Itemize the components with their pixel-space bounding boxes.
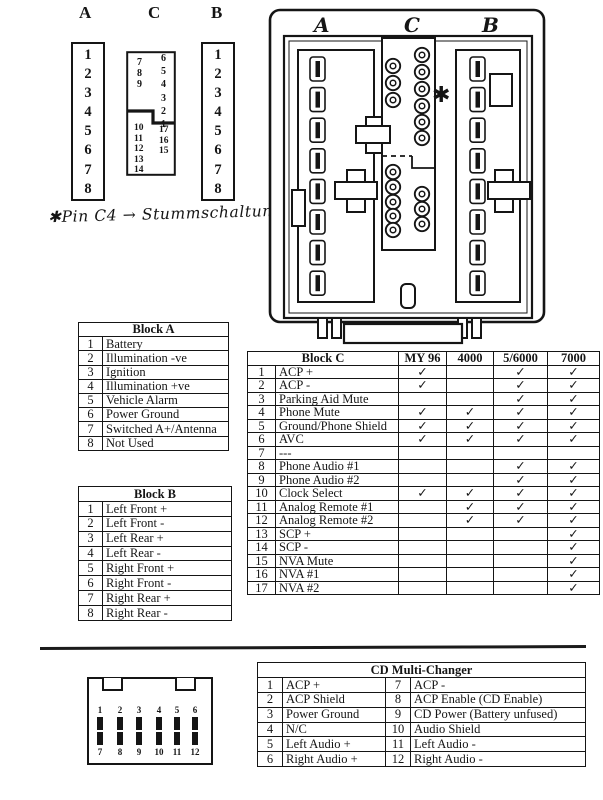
check-cell [494, 554, 548, 568]
pin-number: 12 [134, 144, 144, 155]
column-header: MY 96 [399, 352, 447, 366]
check-cell [399, 527, 447, 541]
round-pin-center [419, 69, 425, 75]
connector-c-pinout: 789 654321 1011121314 171615 [126, 51, 176, 176]
pin-name-cell: Left Rear + [103, 531, 232, 546]
check-cell [447, 379, 494, 393]
blade-pin [316, 153, 321, 169]
pin-number-cell: 5 [248, 419, 276, 433]
pin-number-cell: 2 [248, 379, 276, 393]
round-pin-center [419, 52, 425, 58]
pin-number-cell: 6 [258, 752, 283, 767]
table-row: 15NVA Mute✓ [248, 554, 600, 568]
pin-number: 3 [73, 84, 103, 103]
pin-name-cell: AVC [276, 433, 399, 447]
pin-number: 3 [131, 705, 147, 716]
pin-number-cell: 4 [79, 546, 103, 561]
blade-pin [316, 92, 321, 108]
pin-name-cell: Analog Remote #2 [276, 514, 399, 528]
pin-number-cell: 7 [79, 422, 103, 436]
connector-c-round-pins-bottom-left [386, 165, 400, 237]
check-cell: ✓ [494, 460, 548, 474]
table-header-row: Block CMY 9640005/60007000 [248, 352, 600, 366]
pin-number-cell: 12 [248, 514, 276, 528]
pin-name-cell: Right Front + [103, 561, 232, 576]
check-cell [447, 460, 494, 474]
pin-number-cell: 17 [248, 581, 276, 595]
pin-name-cell: NVA #2 [276, 581, 399, 595]
check-cell: ✓ [548, 487, 600, 501]
pin-number: 2 [203, 65, 233, 84]
check-cell [447, 527, 494, 541]
round-pin-center [419, 86, 425, 92]
pin-name-cell: --- [276, 446, 399, 460]
diagram-label-b: B [481, 13, 499, 37]
table-row: 3Ignition [79, 365, 229, 379]
pin-number-cell: 6 [248, 433, 276, 447]
table-row: 17NVA #2✓ [248, 581, 600, 595]
pin-number: 4 [161, 78, 166, 91]
pin-number: 14 [134, 165, 144, 176]
table-title: Block A [79, 323, 229, 337]
connector-c-pins-top-left: 789 [137, 57, 142, 90]
handwritten-note: ✱Pin C4 → Stummschaltung [48, 202, 284, 227]
table-row: 14SCP -✓ [248, 541, 600, 555]
pin-number-cell: 2 [79, 516, 103, 531]
pin-name-cell: Left Front - [103, 516, 232, 531]
pin-name-cell: ACP - [276, 379, 399, 393]
blade-pin [476, 61, 481, 77]
pin-number: 9 [131, 747, 147, 758]
pin-number: 1 [203, 46, 233, 65]
pin-number-cell: 8 [79, 436, 103, 450]
pin-number: 12 [187, 747, 203, 758]
table-row: 4Illumination +ve [79, 379, 229, 393]
connector-a-letter: A [79, 3, 91, 23]
table-row: 12Analog Remote #2✓✓✓ [248, 514, 600, 528]
pin-number: 8 [73, 180, 103, 199]
check-cell: ✓ [447, 433, 494, 447]
pin-number: 13 [134, 155, 144, 166]
pin-number: 15 [159, 146, 169, 157]
table-row: 2Left Front - [79, 516, 232, 531]
check-cell [494, 581, 548, 595]
pin-name-cell: NVA Mute [276, 554, 399, 568]
table-row: 5Right Front + [79, 561, 232, 576]
pin-number: 2 [161, 105, 166, 118]
check-cell [399, 581, 447, 595]
check-cell: ✓ [548, 460, 600, 474]
pin-name-cell: N/C [283, 722, 386, 737]
pin-number-cell: 14 [248, 541, 276, 555]
pin-number: 7 [73, 161, 103, 180]
check-cell [447, 581, 494, 595]
pin-name-cell: Illumination +ve [103, 379, 229, 393]
pin-number-cell: 9 [248, 473, 276, 487]
block-a-table: Block A1Battery2Illumination -ve3Ignitio… [78, 322, 229, 451]
table-row: 1Battery [79, 337, 229, 351]
check-cell: ✓ [399, 487, 447, 501]
pin-number-cell: 2 [258, 692, 283, 707]
table-row: 1Left Front + [79, 501, 232, 516]
pin-number-cell: 13 [248, 527, 276, 541]
connector-c-step-divider [127, 111, 175, 123]
blade-pin [476, 153, 481, 169]
connector-notch [102, 678, 123, 691]
table-row: 2ACP Shield8ACP Enable (CD Enable) [258, 692, 586, 707]
check-cell [447, 365, 494, 379]
blade-pin [316, 122, 321, 138]
pin-number: 7 [137, 57, 142, 68]
check-cell [399, 541, 447, 555]
table-row: 5Vehicle Alarm [79, 393, 229, 407]
check-cell [494, 527, 548, 541]
check-cell [399, 514, 447, 528]
column-header: 4000 [447, 352, 494, 366]
pin-name-cell: Power Ground [283, 707, 386, 722]
pin-number: 11 [134, 134, 144, 145]
column-header: 5/6000 [494, 352, 548, 366]
pin-name-cell: NVA #1 [276, 568, 399, 582]
check-cell [494, 541, 548, 555]
table-row: 6Right Audio +12Right Audio - [258, 752, 586, 767]
pin-number-cell: 11 [248, 500, 276, 514]
round-pin-center [390, 169, 396, 175]
check-cell: ✓ [447, 514, 494, 528]
pin-number-cell: 5 [258, 737, 283, 752]
table-row: 13SCP +✓ [248, 527, 600, 541]
pin-number-cell: 6 [79, 408, 103, 422]
pin-name-cell: SCP + [276, 527, 399, 541]
check-cell: ✓ [494, 406, 548, 420]
pin-number-cell: 4 [79, 379, 103, 393]
table-row: 4N/C10Audio Shield [258, 722, 586, 737]
pin-number: 11 [169, 747, 185, 758]
check-cell: ✓ [548, 433, 600, 447]
pin-name-cell: Ground/Phone Shield [276, 419, 399, 433]
pin-name-cell: ACP + [276, 365, 399, 379]
table-row: 3Left Rear + [79, 531, 232, 546]
pin-number-cell: 10 [248, 487, 276, 501]
connector-pin-column: 511 [169, 705, 185, 758]
pin-name-cell: Right Rear - [103, 606, 232, 621]
check-cell [399, 446, 447, 460]
pin-number-cell: 5 [79, 561, 103, 576]
check-cell [399, 554, 447, 568]
pin-number-cell: 3 [79, 365, 103, 379]
pin-name-cell: Power Ground [103, 408, 229, 422]
check-cell [494, 568, 548, 582]
check-cell: ✓ [548, 406, 600, 420]
pin-name-cell: SCP - [276, 541, 399, 555]
pin-number: 5 [203, 122, 233, 141]
blade-pin [316, 275, 321, 291]
table-row: 6Power Ground [79, 408, 229, 422]
round-pin-center [390, 97, 396, 103]
table-title-row: Block A [79, 323, 229, 337]
blade-pin [476, 245, 481, 261]
wiring-diagram-page: A C B 12345678 12345678 789 654321 10111… [0, 0, 603, 800]
pin-number-cell: 6 [79, 576, 103, 591]
check-cell: ✓ [548, 541, 600, 555]
pin-name-cell: Phone Audio #2 [276, 473, 399, 487]
round-pin-center [390, 199, 396, 205]
check-cell [447, 446, 494, 460]
pin-number-cell: 16 [248, 568, 276, 582]
check-cell: ✓ [399, 433, 447, 447]
pin-number-cell: 10 [386, 722, 411, 737]
table-title: CD Multi-Changer [258, 663, 586, 678]
pin-blade [174, 717, 180, 730]
left-latch [292, 190, 305, 226]
table-row: 8Right Rear - [79, 606, 232, 621]
check-cell [399, 500, 447, 514]
check-cell: ✓ [399, 379, 447, 393]
bottom-keyway [401, 284, 415, 308]
check-cell: ✓ [494, 379, 548, 393]
pin-name-cell: Right Front - [103, 576, 232, 591]
connector-pin-column: 410 [151, 705, 167, 758]
block-c-table: Block CMY 9640005/600070001ACP +✓✓✓2ACP … [247, 351, 600, 595]
connector-pin-column: 612 [187, 705, 203, 758]
check-cell: ✓ [548, 568, 600, 582]
round-pin-center [419, 103, 425, 109]
table-row: 1ACP +7ACP - [258, 677, 586, 692]
round-pin-center [419, 191, 425, 197]
pin-name-cell: Phone Mute [276, 406, 399, 420]
pin-number-cell: 12 [386, 752, 411, 767]
table-title-row: Block B [79, 487, 232, 502]
round-pin-center [390, 80, 396, 86]
pin-number-cell: 8 [248, 460, 276, 474]
pin-number: 1 [73, 46, 103, 65]
table-row: 8Not Used [79, 436, 229, 450]
pin-number: 5 [73, 122, 103, 141]
table-row: 11Analog Remote #1✓✓✓ [248, 500, 600, 514]
pin-name-cell: ACP - [411, 677, 586, 692]
pin-name-cell: Parking Aid Mute [276, 392, 399, 406]
bottom-leg [318, 318, 327, 338]
table-row: 2Illumination -ve [79, 351, 229, 365]
pin-blade [97, 717, 103, 730]
pin-number: 4 [73, 103, 103, 122]
table-row: 3Power Ground9CD Power (Battery unfused) [258, 707, 586, 722]
table-row: 16NVA #1✓ [248, 568, 600, 582]
connector-pin-column: 28 [112, 705, 128, 758]
pin-c4-asterisk-marker: ✱ [432, 83, 450, 108]
pin-number-cell: 7 [386, 677, 411, 692]
pin-number: 1 [92, 705, 108, 716]
pin-number: 4 [151, 705, 167, 716]
pin-name-cell: Switched A+/Antenna [103, 422, 229, 436]
pin-blade [192, 717, 198, 730]
check-cell [447, 554, 494, 568]
connector-a-pinout: 12345678 [71, 42, 105, 201]
check-cell [447, 541, 494, 555]
pin-number-cell: 3 [248, 392, 276, 406]
blade-pin [316, 214, 321, 230]
pin-number: 9 [137, 79, 142, 90]
check-cell: ✓ [548, 581, 600, 595]
pin-number-cell: 1 [258, 677, 283, 692]
round-pin-center [390, 213, 396, 219]
pin-number: 8 [112, 747, 128, 758]
connector-b-letter: B [211, 3, 222, 23]
pin-number-cell: 4 [248, 406, 276, 420]
pin-name-cell: Ignition [103, 365, 229, 379]
diagram-label-a: A [312, 13, 330, 37]
connector-c-letter: C [148, 3, 160, 23]
pin-number: 6 [203, 141, 233, 160]
pin-name-cell: Right Audio - [411, 752, 586, 767]
connector-c-pins-bottom-right: 171615 [159, 125, 169, 157]
round-pin-center [390, 184, 396, 190]
table-row: 6AVC✓✓✓✓ [248, 433, 600, 447]
pin-number-cell: 4 [258, 722, 283, 737]
diagram-label-c: C [404, 13, 420, 37]
round-pin-center [390, 63, 396, 69]
blade-pin [316, 245, 321, 261]
connector-c-round-pins-bottom-right [415, 187, 429, 231]
pin-number: 2 [73, 65, 103, 84]
pin-blade [136, 717, 142, 730]
pin-number-cell: 9 [386, 707, 411, 722]
check-cell [447, 568, 494, 582]
blade-pin [476, 92, 481, 108]
right-clamp-horizontal [488, 182, 530, 199]
cd-multi-changer-table: CD Multi-Changer1ACP +7ACP -2ACP Shield8… [257, 662, 586, 767]
pin-number: 10 [134, 123, 144, 134]
right-latch [490, 74, 512, 106]
connector-pin-column: 17 [92, 705, 108, 758]
left-clamp-horizontal [335, 182, 377, 199]
round-pin-center [390, 227, 396, 233]
pin-number: 3 [203, 84, 233, 103]
table-title: Block C [248, 352, 399, 366]
pin-number-cell: 3 [258, 707, 283, 722]
check-cell: ✓ [494, 433, 548, 447]
table-row: 5Left Audio +11Left Audio - [258, 737, 586, 752]
pin-number: 6 [73, 141, 103, 160]
pin-name-cell: Illumination -ve [103, 351, 229, 365]
table-title: Block B [79, 487, 232, 502]
check-cell: ✓ [548, 379, 600, 393]
pin-number: 7 [92, 747, 108, 758]
pin-name-cell: Left Audio - [411, 737, 586, 752]
pin-name-cell: ACP Shield [283, 692, 386, 707]
blade-pin [316, 61, 321, 77]
connector-b-pinout: 12345678 [201, 42, 235, 201]
center-clamp-horizontal [356, 126, 390, 143]
pin-name-cell: Right Rear + [103, 591, 232, 606]
bottom-leg [472, 318, 481, 338]
pin-name-cell: ACP Enable (CD Enable) [411, 692, 586, 707]
connector-c-pins-bottom-left: 1011121314 [134, 123, 144, 176]
round-pin-center [419, 135, 425, 141]
blade-pin [476, 183, 481, 199]
pin-number-cell: 1 [79, 337, 103, 351]
pin-blade [156, 732, 162, 745]
pin-blade [117, 717, 123, 730]
table-title-row: CD Multi-Changer [258, 663, 586, 678]
table-row: 6Right Front - [79, 576, 232, 591]
pin-number: 8 [203, 180, 233, 199]
pin-blade [97, 732, 103, 745]
blade-pin [476, 214, 481, 230]
check-cell: ✓ [447, 406, 494, 420]
pin-number: 6 [187, 705, 203, 716]
pin-number: 5 [161, 65, 166, 78]
cd-changer-connector-drawing: 172839410511612 [87, 677, 213, 765]
blade-pin [316, 183, 321, 199]
pin-number: 4 [203, 103, 233, 122]
pin-name-cell: Vehicle Alarm [103, 393, 229, 407]
pin-name-cell: Left Audio + [283, 737, 386, 752]
pin-number: 8 [137, 68, 142, 79]
blade-pin [476, 275, 481, 291]
pin-number: 6 [161, 52, 166, 65]
pin-name-cell: Right Audio + [283, 752, 386, 767]
round-pin-center [419, 206, 425, 212]
pin-name-cell: Left Front + [103, 501, 232, 516]
pin-number: 2 [112, 705, 128, 716]
pin-name-cell: CD Power (Battery unfused) [411, 707, 586, 722]
pin-blade [174, 732, 180, 745]
pin-blade [136, 732, 142, 745]
pin-number-cell: 5 [79, 393, 103, 407]
column-header: 7000 [548, 352, 600, 366]
bottom-tab [344, 324, 462, 343]
table-row: 4Phone Mute✓✓✓✓ [248, 406, 600, 420]
pin-number-cell: 1 [79, 501, 103, 516]
pin-number: 16 [159, 136, 169, 147]
pin-number-cell: 2 [79, 351, 103, 365]
connector-c-round-pins-top-left [386, 59, 400, 107]
blade-pin [476, 122, 481, 138]
pin-name-cell: Battery [103, 337, 229, 351]
check-cell [399, 568, 447, 582]
table-row: 7Right Rear + [79, 591, 232, 606]
pin-number-cell: 11 [386, 737, 411, 752]
pin-name-cell: Left Rear - [103, 546, 232, 561]
check-cell: ✓ [494, 487, 548, 501]
table-row: 8Phone Audio #1✓✓ [248, 460, 600, 474]
pin-name-cell: Analog Remote #1 [276, 500, 399, 514]
pin-name-cell: Clock Select [276, 487, 399, 501]
check-cell [399, 460, 447, 474]
pin-number: 17 [159, 125, 169, 136]
pin-number-cell: 3 [79, 531, 103, 546]
connector-c-pins-top-right: 654321 [161, 52, 166, 131]
pin-number-cell: 15 [248, 554, 276, 568]
table-row: 4Left Rear - [79, 546, 232, 561]
pin-number: 7 [203, 161, 233, 180]
pin-number-cell: 7 [79, 591, 103, 606]
block-b-table: Block B1Left Front +2Left Front -3Left R… [78, 486, 232, 621]
pin-number: 3 [161, 92, 166, 105]
connector-pin-column: 39 [131, 705, 147, 758]
bottom-leg [332, 318, 341, 338]
check-cell: ✓ [447, 487, 494, 501]
pin-number-cell: 8 [386, 692, 411, 707]
table-row: 2ACP -✓✓✓ [248, 379, 600, 393]
check-cell: ✓ [399, 406, 447, 420]
table-row: 7--- [248, 446, 600, 460]
table-row: 7Switched A+/Antenna [79, 422, 229, 436]
pin-name-cell: Not Used [103, 436, 229, 450]
pin-number: 5 [169, 705, 185, 716]
round-pin-center [419, 119, 425, 125]
